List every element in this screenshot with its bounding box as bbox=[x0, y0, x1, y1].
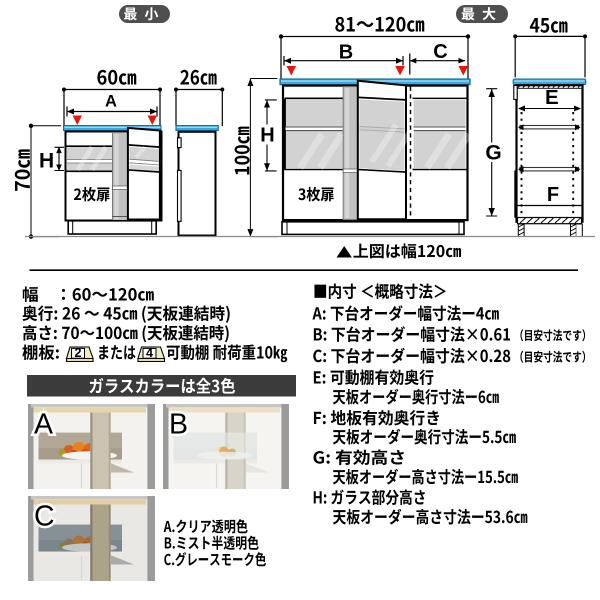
svg-text:2: 2 bbox=[75, 346, 82, 360]
svg-text:A: A bbox=[34, 409, 53, 441]
svg-text:G: G bbox=[485, 142, 501, 165]
svg-text:F: F bbox=[547, 184, 559, 206]
svg-text:E: E bbox=[545, 86, 559, 109]
svg-text:B: B bbox=[169, 409, 188, 441]
svg-text:4: 4 bbox=[146, 346, 153, 360]
svg-text:C: C bbox=[34, 501, 55, 533]
svg-text:A: A bbox=[105, 93, 117, 111]
svg-text:C: C bbox=[433, 41, 447, 63]
svg-text:H: H bbox=[260, 125, 274, 147]
svg-text:H: H bbox=[39, 150, 54, 173]
